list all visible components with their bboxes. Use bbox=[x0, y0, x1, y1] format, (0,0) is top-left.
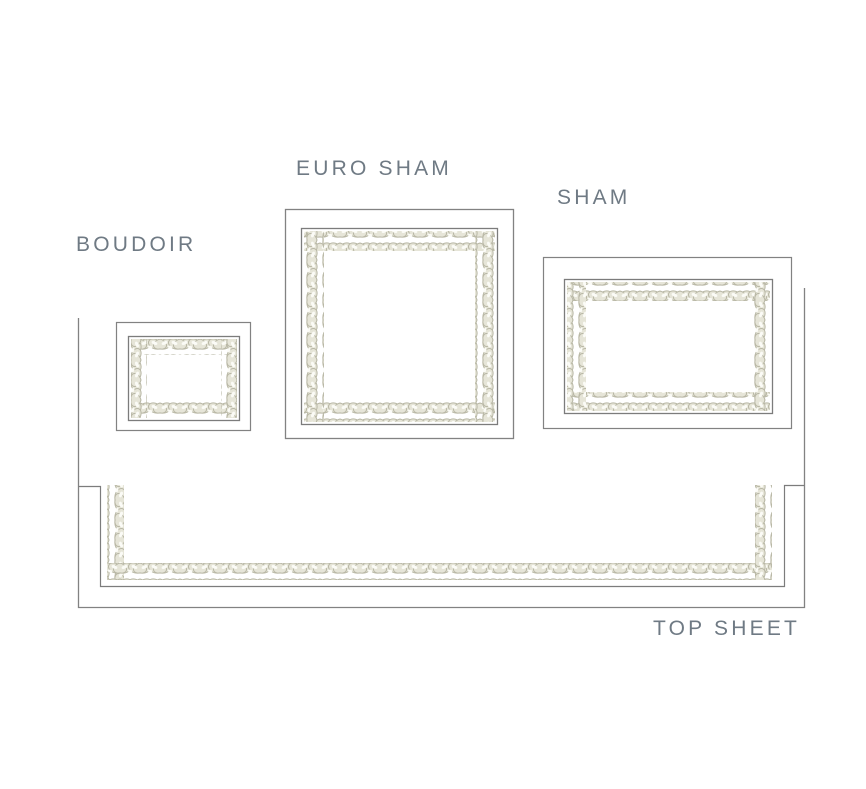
euro-sham-pillow bbox=[286, 210, 514, 439]
boudoir-label: BOUDOIR bbox=[76, 234, 196, 256]
top-sheet-braid-border bbox=[107, 485, 772, 580]
top-sheet-label: TOP SHEET bbox=[653, 618, 800, 640]
sham-label: SHAM bbox=[557, 187, 630, 209]
diagram-shapes bbox=[0, 0, 866, 789]
boudoir-pillow bbox=[117, 323, 251, 431]
euro-sham-label: EURO SHAM bbox=[296, 158, 452, 180]
sham-pillow bbox=[544, 258, 792, 429]
bedding-size-diagram: BOUDOIR EURO SHAM SHAM TOP SHEET bbox=[0, 0, 866, 789]
